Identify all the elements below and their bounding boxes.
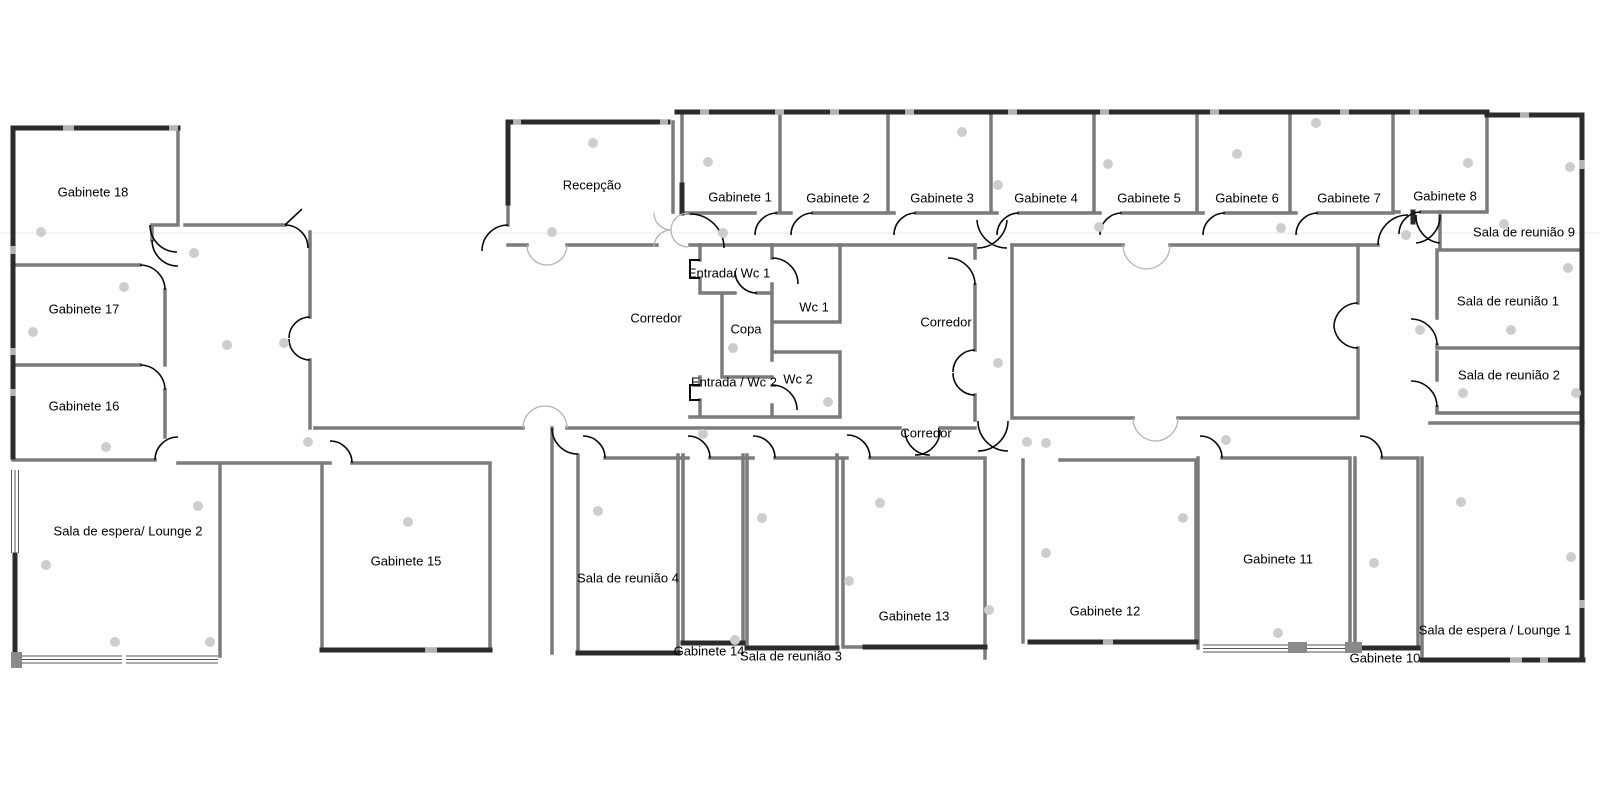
room-label-gabinete-12: Gabinete 12: [1070, 605, 1141, 620]
room-label-gabinete-13: Gabinete 13: [879, 610, 950, 625]
room-label-gabinete-2: Gabinete 2: [806, 192, 870, 207]
room-label-recep-o: Recepção: [563, 179, 622, 194]
room-label-copa: Copa: [730, 323, 761, 338]
room-label-gabinete-14: Gabinete 14: [674, 645, 745, 660]
room-label-entrada-wc-2: Entrada / Wc 2: [691, 376, 777, 391]
room-label-gabinete-8: Gabinete 8: [1413, 190, 1477, 205]
room-label-wc-1: Wc 1: [799, 301, 829, 316]
room-label-sala-de-reuni-o-1: Sala de reunião 1: [1457, 295, 1559, 310]
room-label-sala-de-reuni-o-3: Sala de reunião 3: [740, 650, 842, 665]
room-label-corredor: Corredor: [920, 316, 971, 331]
room-labels: Gabinete 18Gabinete 17Gabinete 16Sala de…: [0, 0, 1600, 800]
room-label-gabinete-16: Gabinete 16: [49, 400, 120, 415]
room-label-gabinete-5: Gabinete 5: [1117, 192, 1181, 207]
floor-plan-stage: Gabinete 18Gabinete 17Gabinete 16Sala de…: [0, 0, 1600, 800]
room-label-gabinete-11: Gabinete 11: [1243, 553, 1313, 568]
room-label-sala-de-espera-lounge-2: Sala de espera/ Lounge 2: [54, 525, 203, 540]
room-label-gabinete-10: Gabinete 10: [1350, 652, 1421, 667]
room-label-gabinete-7: Gabinete 7: [1317, 192, 1381, 207]
room-label-sala-de-reuni-o-2: Sala de reunião 2: [1458, 369, 1560, 384]
room-label-sala-de-reuni-o-9: Sala de reunião 9: [1473, 226, 1575, 241]
room-label-entrada-wc-1: Entrada/ Wc 1: [688, 267, 770, 282]
room-label-corredor: Corredor: [630, 312, 681, 327]
room-label-sala-de-reuni-o-4: Sala de reunião 4: [577, 572, 679, 587]
room-label-gabinete-1: Gabinete 1: [708, 191, 772, 206]
room-label-gabinete-15: Gabinete 15: [371, 555, 442, 570]
room-label-gabinete-6: Gabinete 6: [1215, 192, 1279, 207]
room-label-gabinete-3: Gabinete 3: [910, 192, 974, 207]
room-label-wc-2: Wc 2: [783, 373, 813, 388]
room-label-gabinete-18: Gabinete 18: [58, 186, 129, 201]
room-label-corredor: Corredor: [900, 427, 951, 442]
room-label-gabinete-4: Gabinete 4: [1014, 192, 1078, 207]
room-label-sala-de-espera-lounge-1: Sala de espera / Lounge 1: [1419, 624, 1572, 639]
room-label-gabinete-17: Gabinete 17: [49, 303, 120, 318]
